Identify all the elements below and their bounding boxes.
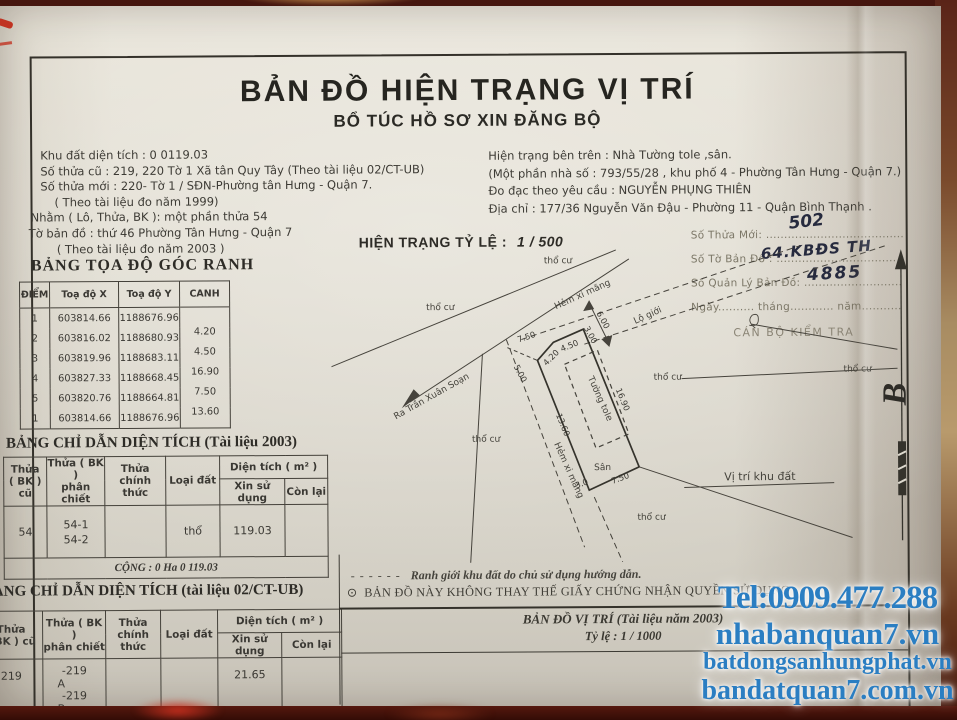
site-plan-drawing: B thổ cư thổ cư thổ cư thổ cư thổ cư thổ…	[331, 245, 913, 564]
table-row: 3603819.961188683.1116.90	[20, 347, 230, 368]
coordinate-table-title: BẢNG TỌA ĐỘ GÓC RANH	[31, 256, 254, 275]
parcel-location-label: Vị trí khu đất	[724, 470, 796, 483]
area-table-ctub-title: BẢNG CHỈ DẪN DIỆN TÍCH (tài liệu 02/CT-U…	[0, 582, 303, 601]
dim-label: 4.50	[559, 337, 580, 353]
info-line: Số thửa cũ : 219, 220 Tờ 1 Xã tân Quy Tâ…	[28, 161, 468, 179]
photo-smudge	[225, 0, 435, 10]
dim-label: 5.00	[512, 363, 530, 384]
watermark-website: bandatquan7.com.vn	[698, 676, 957, 706]
alley-label: Hẻm xi măng	[553, 277, 612, 312]
road-edge-line	[331, 250, 617, 369]
land-use-label: thổ cư	[426, 302, 456, 313]
land-use-label: thổ cư	[472, 434, 502, 445]
corner-coordinate-table: ĐIỂM Toạ độ X Toạ độ Y CANH 1603814.6611…	[19, 280, 231, 429]
vi-tri-leader-line	[684, 483, 834, 488]
legend-note-boundary: - - - - - -Ranh giới khu đất do chủ sử d…	[351, 567, 642, 584]
fabric-flower-blur	[118, 696, 238, 720]
table-row: 2603816.021188680.934.50	[20, 327, 230, 348]
dim-label: 4.20	[541, 347, 561, 367]
land-use-label: thổ cư	[637, 512, 667, 523]
watermark-phone: Tel:0909.477.288	[698, 581, 957, 617]
table-row: 5603820.761188664.8113.60	[20, 387, 230, 408]
north-letter: B	[877, 382, 913, 406]
road-limit-label: Lộ giới	[632, 304, 664, 326]
boundary-line	[469, 354, 483, 563]
land-use-label: thổ cư	[544, 255, 574, 266]
table-row: 1603814.661188676.964.20	[20, 307, 230, 329]
dim-label: 7.50	[610, 470, 631, 486]
red-pen-mark	[0, 18, 17, 54]
watermark-website: nhabanquan7.vn	[698, 617, 957, 650]
alley-dashed-line	[594, 497, 622, 562]
table-row: 4603827.331188668.457.50	[20, 367, 230, 388]
road-label: Ra Trần Xuân Soạn	[392, 371, 471, 422]
yard-label: Sân	[594, 463, 611, 473]
document-photo: BẢN ĐỒ HIỆN TRẠNG VỊ TRÍ BỔ TÚC HỒ SƠ XI…	[0, 0, 957, 720]
col-header: ĐIỂM	[19, 282, 49, 308]
area-table-2003-title: BẢNG CHỈ DẪN DIỆN TÍCH (Tài liệu 2003)	[6, 434, 297, 453]
col-header: CANH	[179, 281, 229, 307]
dim-label: 16.90	[614, 386, 632, 412]
table-row: 54 54-154-2 thổ 119.03	[4, 504, 328, 558]
north-arrow: B	[876, 249, 913, 540]
total-row: CỘNG : 0 Ha 0 119.03	[4, 556, 328, 579]
col-header: Toạ độ X	[49, 282, 118, 308]
watermark-website: batdongsanhungphat.vn	[698, 650, 957, 676]
dim-label: 13.60	[554, 412, 572, 438]
fabric-shadow-blur	[370, 702, 510, 720]
col-header: Toạ độ Y	[118, 281, 179, 307]
land-use-label: thổ cư	[654, 372, 684, 383]
page-title: BẢN ĐỒ HIỆN TRẠNG VỊ TRÍ	[30, 71, 905, 110]
area-table-2003: Thửa( BK ) cũ Thửa ( BK )phân chiết Thửa…	[3, 455, 329, 580]
dim-label: 7.50	[516, 329, 537, 344]
table-row: 1603814.661188676.96	[20, 407, 230, 429]
watermark-contact: Tel:0909.477.288 nhabanquan7.vn batdongs…	[698, 581, 957, 706]
hand-squiggle	[749, 314, 758, 328]
area-table-ctub: Thửa( BK ) cũ Thửa ( BK )phân chiết Thửa…	[0, 609, 343, 708]
handwritten-parcel-number: 502	[788, 210, 825, 234]
